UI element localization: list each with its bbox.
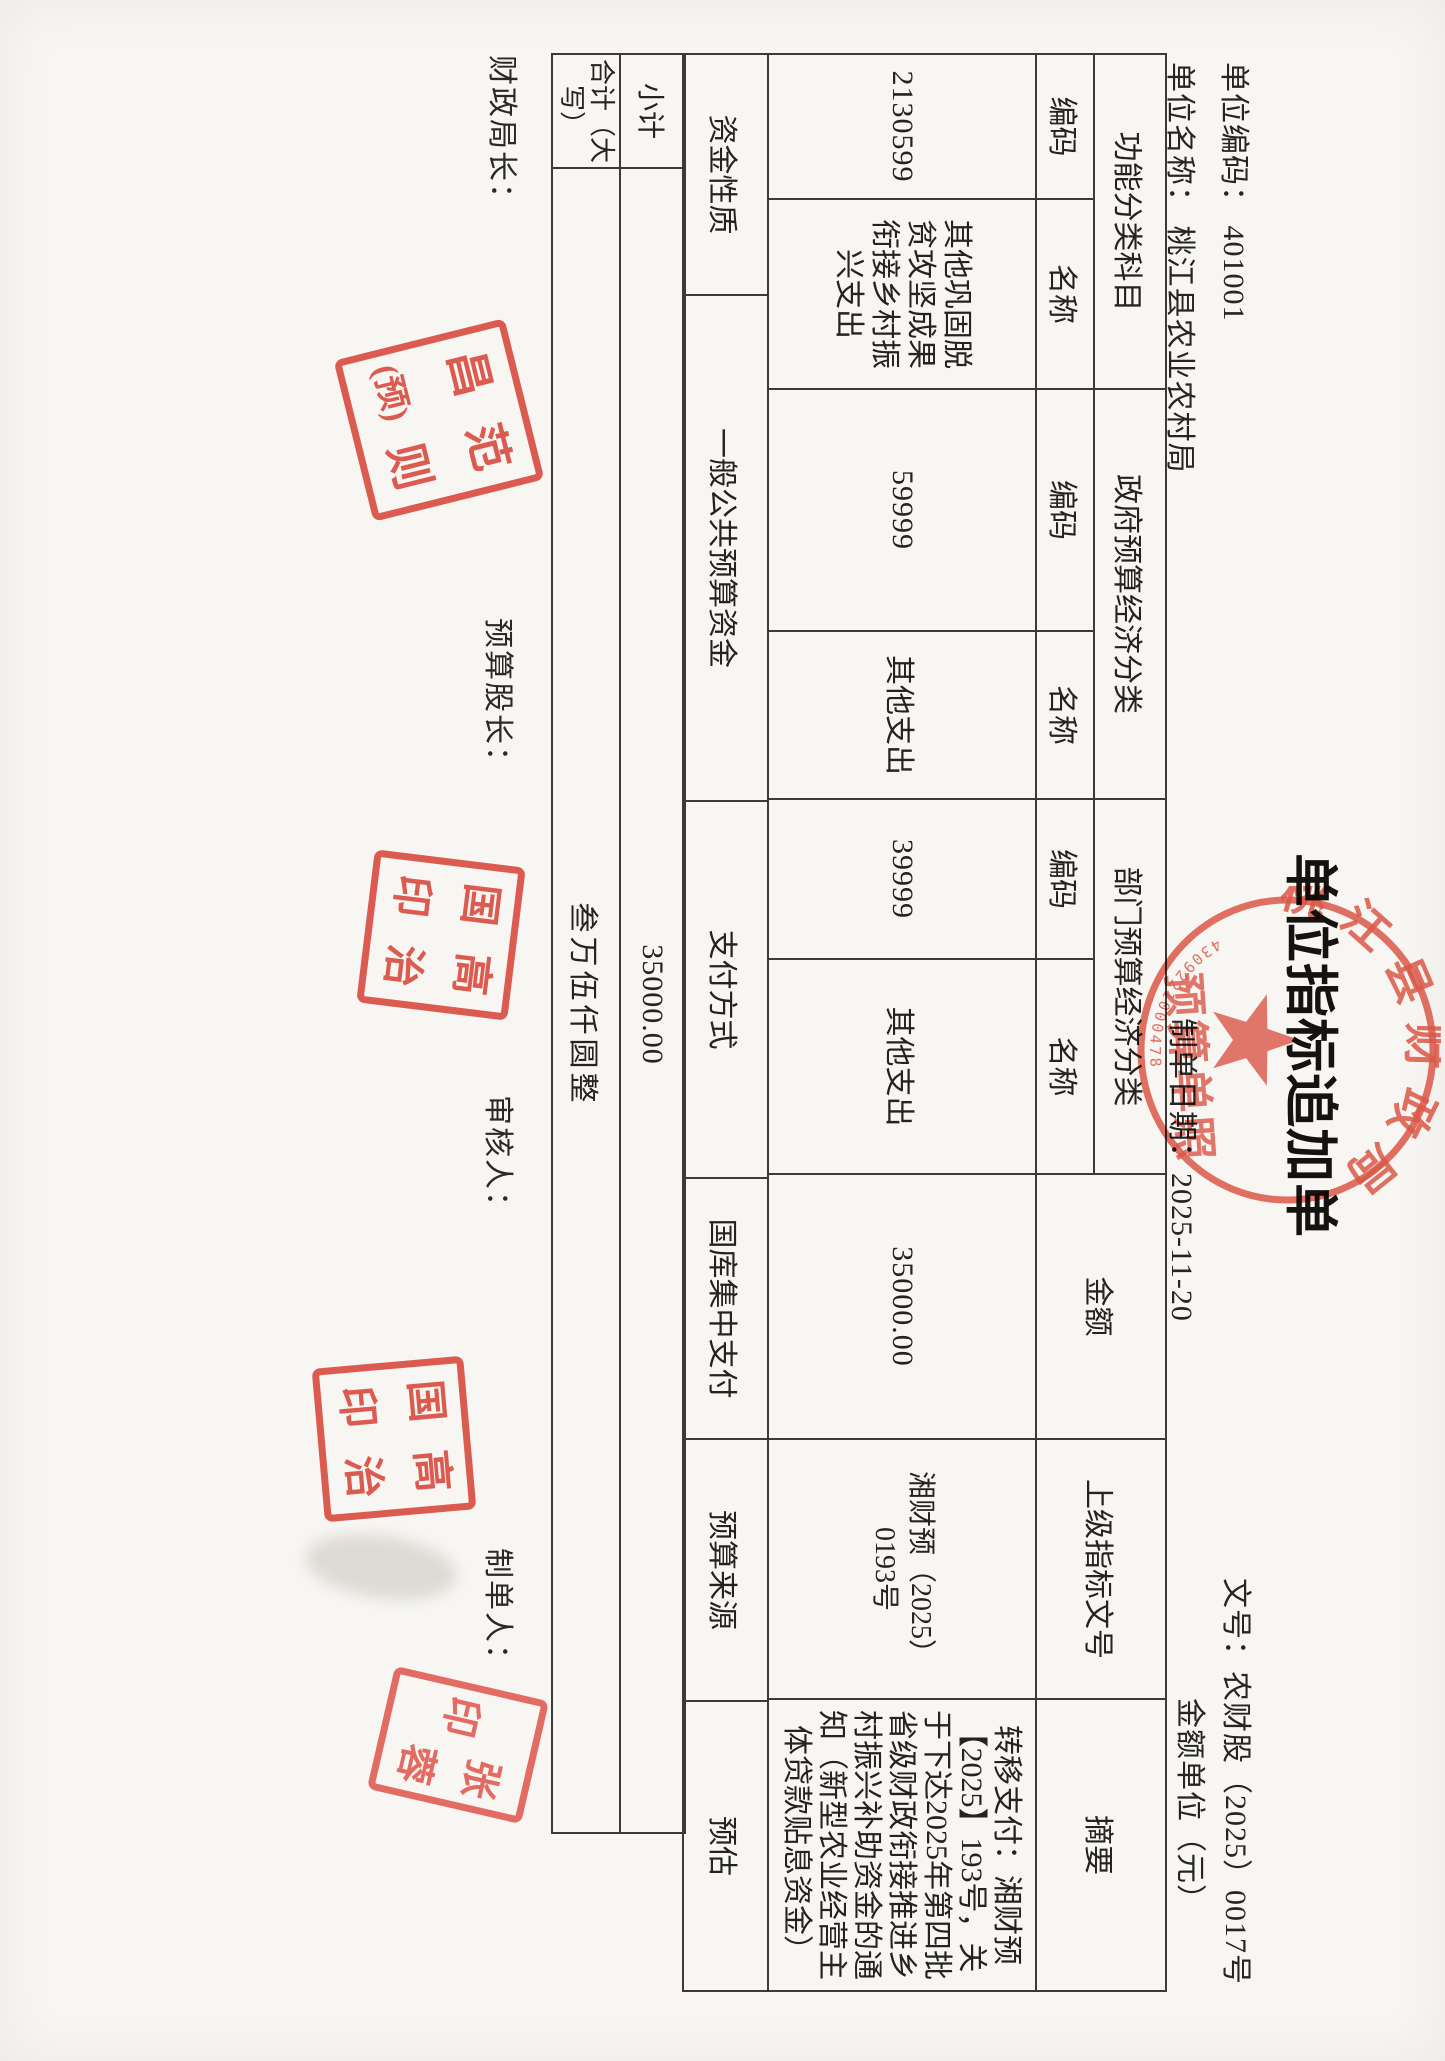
- round-official-stamp: 桃江县财政局 预算单照 4309221000478: [1129, 886, 1441, 1214]
- stamp-gao1-char-br: 治: [379, 942, 426, 989]
- doc-number-line: 文号：农财股（2025）0017号: [1217, 1578, 1261, 1985]
- header-func-group: 功能分类科目: [1094, 54, 1166, 389]
- cell-func-name: 其他巩固脱贫攻坚成果衔接乡村振兴支出: [768, 199, 1036, 389]
- cell-amount: 35000.00: [768, 1174, 1036, 1439]
- stamp-fan-char-br: 则: [381, 439, 437, 495]
- stamp-gao-zhiguo-1: 国 高 印 治: [356, 849, 526, 1020]
- cell-dept-name: 其他支出: [768, 959, 1036, 1174]
- cell-gov-name: 其他支出: [768, 631, 1036, 799]
- stamp-gao2-char-bl: 印: [334, 1384, 380, 1430]
- header-superior-doc: 上级指标文号: [1036, 1439, 1166, 1699]
- header-dept-code: 编码: [1036, 799, 1094, 959]
- header-func-name: 名称: [1036, 199, 1094, 389]
- cell-fund-nature-value: 一般公共预算资金: [683, 295, 768, 801]
- stamp-gao2-char-br: 治: [340, 1454, 386, 1500]
- stamp-zhang-char-rt: 张: [451, 1754, 517, 1806]
- pencil-smudge: [301, 1526, 460, 1609]
- cell-gov-code: 59999: [768, 389, 1036, 631]
- stamp-ring-text: 桃江县财政局: [1275, 886, 1441, 1213]
- cell-pay-method-label: 支付方式: [683, 801, 768, 1178]
- signature-preparer: 制单人：: [479, 1548, 523, 1676]
- signature-budget-chief: 预算股长：: [479, 618, 523, 778]
- stamp-gao1-char-bl: 印: [388, 873, 435, 920]
- stamp-gao1-char-tl: 国: [456, 881, 503, 928]
- landscape-sheet: 单位指标追加单 单位编码： 401001 单位名称： 桃江县农业农村局 制单日期…: [0, 0, 1445, 2061]
- scanned-form-page: 单位指标追加单 单位编码： 401001 单位名称： 桃江县农业农村局 制单日期…: [0, 0, 1445, 2061]
- unit-name-line: 单位名称： 桃江县农业农村局: [1161, 62, 1205, 474]
- stamp-gao1-char-tr: 高: [448, 951, 495, 998]
- stamp-gao2-char-tl: 国: [403, 1378, 449, 1424]
- star-icon: [1213, 994, 1300, 1085]
- totals-table: 小计 35000.00 合计（大写） 叁万伍仟圆整: [551, 53, 686, 1834]
- stamp-zhang-rong: 印 张 蓉: [367, 1666, 549, 1824]
- total-value: 叁万伍仟圆整: [552, 168, 620, 1833]
- signature-finance-director: 财政局长：: [483, 55, 527, 215]
- header-summary: 摘要: [1036, 1699, 1166, 1991]
- cell-fund-nature-label: 资金性质: [683, 54, 768, 295]
- unit-code-line: 单位编码： 401001: [1215, 62, 1259, 322]
- header-gov-group: 政府预算经济分类: [1094, 389, 1166, 799]
- cell-summary: 转移支付：湘财预【2025】193号，关于下达2025年第四批省级财政衔接推进乡…: [768, 1699, 1036, 1991]
- cell-dept-code: 39999: [768, 799, 1036, 959]
- main-table: 功能分类科目 政府预算经济分类 部门预算经济分类 金额 上级指标文号 摘要 编码…: [767, 53, 1167, 1992]
- header-gov-code: 编码: [1036, 389, 1094, 631]
- cell-pay-method-value: 国库集中支付: [683, 1178, 768, 1439]
- stamp-fan-char-tl: 昌: [441, 345, 497, 401]
- stamp-fan-char-bl: (预): [367, 361, 414, 424]
- signature-auditor: 审核人：: [479, 1095, 523, 1223]
- stamp-zhang-char-rb: 蓉: [387, 1739, 453, 1791]
- header-gov-name: 名称: [1036, 631, 1094, 799]
- subtotal-label: 小计: [620, 54, 685, 168]
- cell-func-code: 2130599: [768, 54, 1036, 199]
- cell-budget-source-value: 预估: [683, 1701, 768, 1991]
- header-func-code: 编码: [1036, 54, 1094, 199]
- subtotal-value: 35000.00: [620, 168, 685, 1833]
- cell-superior-doc: 湘财预（2025）0193号: [768, 1439, 1036, 1699]
- amount-unit-line: 金额单位（元）: [1171, 1698, 1215, 1915]
- stamp-fan-char-tr: 范: [460, 419, 516, 475]
- attr-row-table: 资金性质 一般公共预算资金 支付方式 国库集中支付 预算来源 预估: [682, 53, 769, 1992]
- header-dept-name: 名称: [1036, 959, 1094, 1174]
- stamp-fan-changze: 昌 范 (预) 则: [334, 318, 545, 522]
- svg-text:桃江县财政局: 桃江县财政局: [1275, 886, 1441, 1213]
- stamp-gao-zhiguo-2: 国 高 印 治: [312, 1356, 477, 1523]
- stamp-gao2-char-tr: 高: [409, 1448, 455, 1494]
- cell-budget-source-label: 预算来源: [683, 1439, 768, 1701]
- total-label: 合计（大写）: [552, 54, 620, 168]
